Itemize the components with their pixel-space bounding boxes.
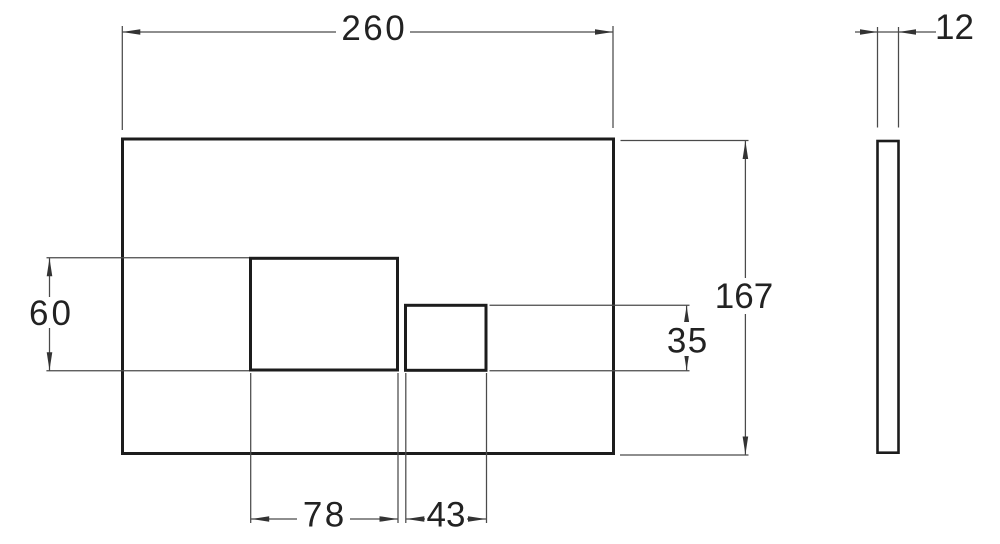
- svg-text:43: 43: [427, 496, 466, 535]
- svg-text:78: 78: [303, 496, 347, 535]
- svg-text:260: 260: [341, 9, 407, 48]
- svg-text:35: 35: [667, 322, 709, 361]
- svg-text:60: 60: [29, 294, 74, 333]
- svg-text:12: 12: [935, 8, 974, 47]
- svg-text:167: 167: [715, 277, 773, 316]
